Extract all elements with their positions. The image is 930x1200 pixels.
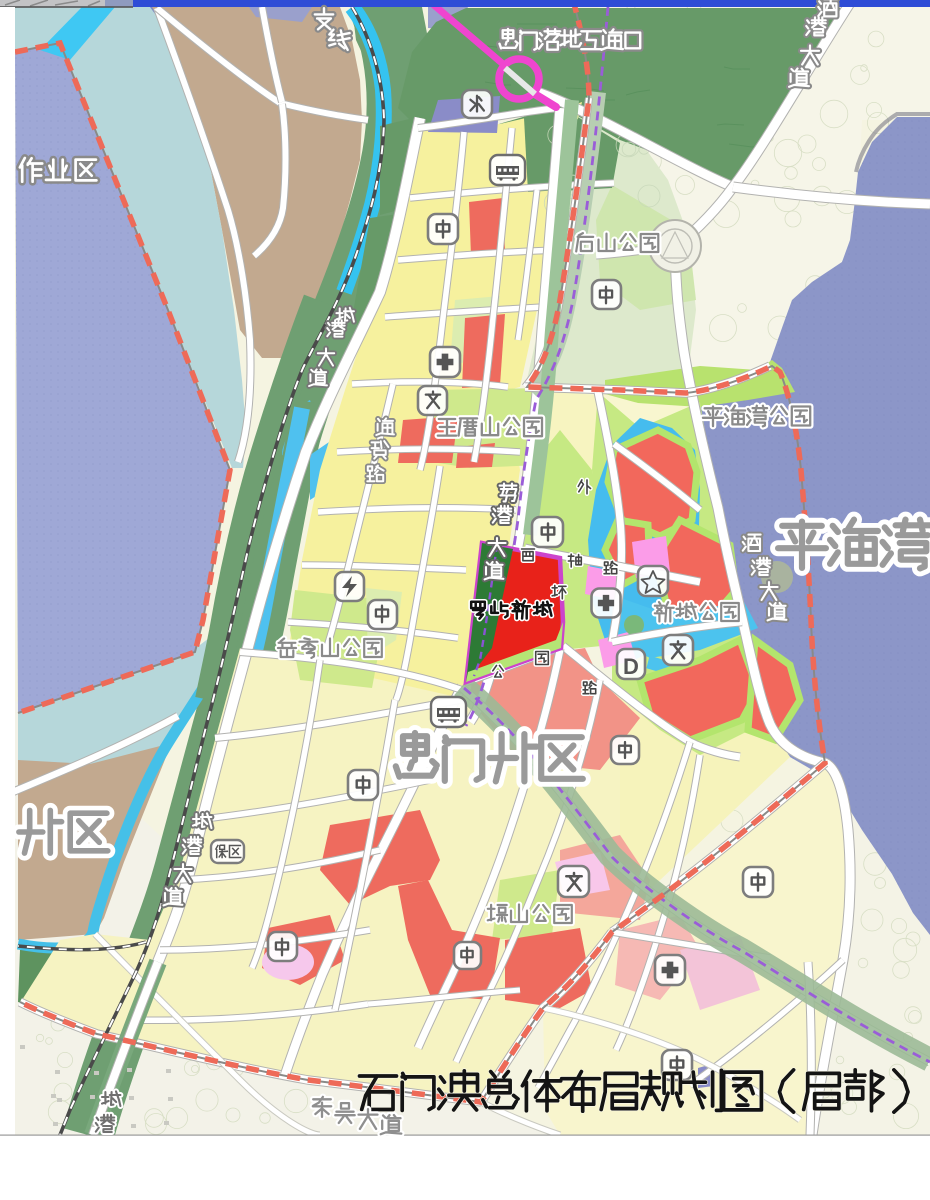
svg-text:D: D: [623, 654, 639, 679]
